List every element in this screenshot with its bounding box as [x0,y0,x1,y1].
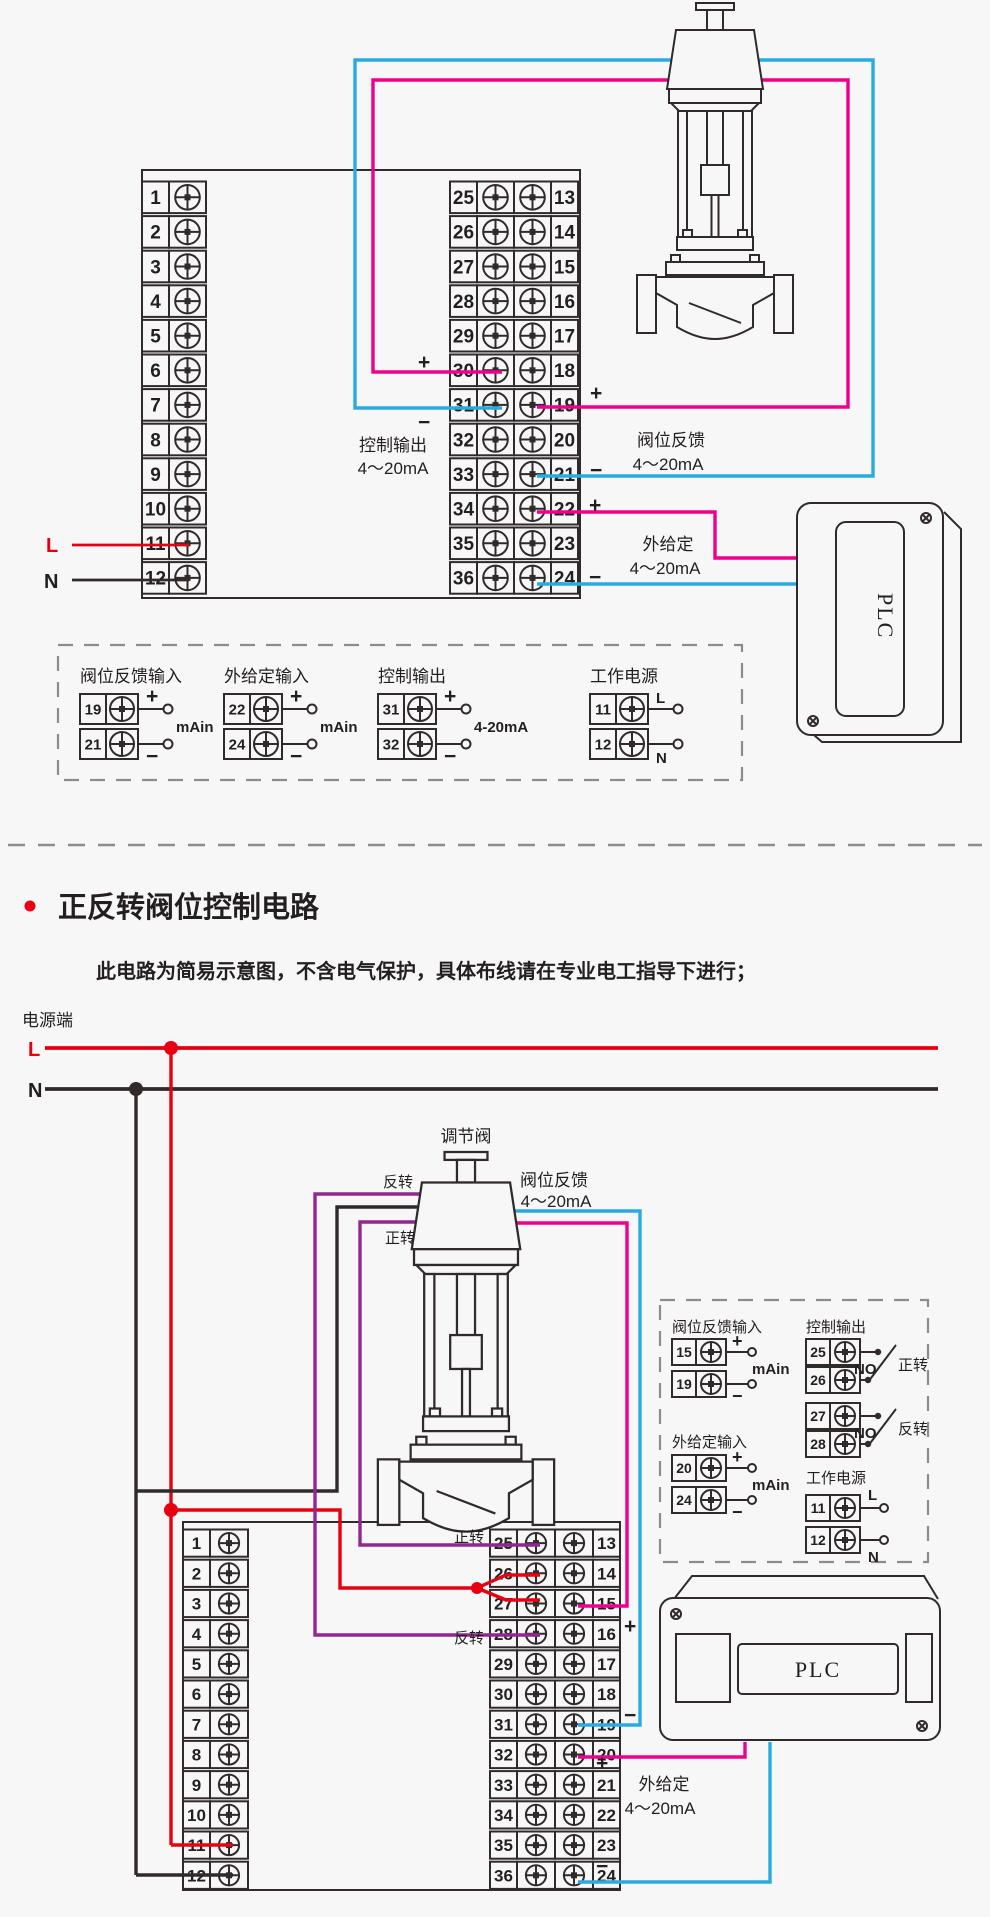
svg-text:9: 9 [192,1776,201,1795]
terminal-block2-1-12: 123456789101112 [183,1530,248,1889]
terminal-row-9: 9 [142,458,206,490]
svg-text:35: 35 [494,1836,513,1855]
svg-text:控制输出: 控制输出 [806,1319,866,1336]
terminal-row-36: 3624 [450,562,578,594]
svg-text:mAin: mAin [176,719,214,736]
svg-text:3: 3 [192,1595,201,1614]
svg-text:20: 20 [554,430,575,451]
terminal-row-10: 10 [183,1801,248,1828]
svg-text:−: − [444,745,456,768]
svg-text:17: 17 [554,327,575,348]
terminal-row-27: 2715 [450,251,578,283]
svg-text:L: L [656,690,665,707]
svg-text:10: 10 [145,500,166,521]
svg-text:13: 13 [597,1534,616,1553]
sign-minus-31: − [418,411,430,434]
terminal-row-25: 2513 [450,182,578,214]
svg-text:工作电源: 工作电源 [806,1470,866,1487]
svg-text:15: 15 [676,1344,692,1360]
svg-text:4-20mA: 4-20mA [474,719,528,736]
terminal-row-2: 2 [142,216,206,248]
terminal-row-4: 4 [142,285,206,317]
legend2-left-0: 阀位反馈输入15+19−mAin [672,1319,790,1406]
svg-text:22: 22 [229,701,246,718]
label-valve-feedback-range-1: 4～20mA [633,455,705,474]
svg-text:3: 3 [150,257,161,278]
svg-text:14: 14 [597,1564,616,1583]
diagram-control-output: 123456789101112 251326142715281629173018… [44,3,961,780]
label-forward-terminal: 正转 [454,1529,484,1546]
svg-text:24: 24 [554,569,576,590]
svg-text:15: 15 [597,1595,616,1614]
svg-text:4: 4 [192,1625,202,1644]
terminal-row-1: 1 [183,1530,248,1557]
svg-text:2: 2 [192,1564,201,1583]
label-control-output-range: 4～20mA [358,459,430,478]
svg-text:19: 19 [85,701,102,718]
terminal-row-25: 2513 [490,1530,620,1557]
wire-control-output-minus [355,60,873,476]
svg-text:17: 17 [597,1655,616,1674]
wiring-diagram-canvas: 123456789101112 251326142715281629173018… [0,0,990,1917]
label-valve-feedback-2: 阀位反馈 [520,1171,588,1190]
svg-text:16: 16 [597,1625,616,1644]
label-forward: 正转 [385,1230,415,1247]
legend1-group-0: 阀位反馈输入19+21−mAin [80,667,214,768]
terminal-row-7: 7 [183,1711,248,1738]
terminal-row-26: 2614 [450,216,578,248]
svg-text:N: N [868,1549,879,1566]
junction-dot-l2 [164,1503,178,1517]
label-valve-feedback-1: 阀位反馈 [637,431,705,450]
label-setpoint-1: 外给定 [643,535,694,554]
svg-text:36: 36 [494,1866,513,1885]
svg-text:23: 23 [554,534,575,555]
svg-text:工作电源: 工作电源 [590,667,658,686]
svg-text:32: 32 [453,430,474,451]
terminal-row-5: 5 [142,320,206,352]
label-l-1: L [46,535,58,557]
section-title: 正反转阀位控制电路 [58,890,320,924]
svg-text:33: 33 [494,1776,513,1795]
terminal-row-27: 2715 [490,1590,620,1617]
svg-text:15: 15 [554,257,576,278]
terminal-block-1-12: 123456789101112 [142,182,206,594]
svg-text:24: 24 [676,1492,692,1508]
legend2-left-1: 外给定输入20+24−mAin [672,1434,790,1522]
label-power-terminal: 电源端 [22,1011,73,1030]
terminal-row-9: 9 [183,1771,248,1798]
svg-text:32: 32 [494,1746,513,1765]
plc-box-1: PLC [797,503,961,742]
terminal-row-33: 3321 [450,458,578,490]
terminal-row-26: 2614 [490,1560,620,1587]
terminal-block-25-36-13-24: 2513261427152816291730183119322033213422… [450,182,578,594]
terminal-row-34: 3422 [490,1801,620,1828]
svg-text:8: 8 [150,430,161,451]
terminal-row-12: 12 [142,562,206,594]
sign-minus-21: − [590,459,602,482]
svg-text:29: 29 [453,327,474,348]
svg-text:13: 13 [554,188,575,209]
legend-groups-1: 阀位反馈输入19+21−mAin外给定输入22+24−mAin控制输出31+32… [80,667,683,768]
svg-text:22: 22 [554,500,575,521]
terminal-block2-25-36-13-24: 2513261427152816291730183119322033213422… [490,1530,620,1889]
label-n-2: N [28,1080,42,1102]
svg-text:10: 10 [187,1806,206,1825]
terminal-row-30: 3018 [490,1681,620,1708]
svg-text:+: + [732,1331,743,1351]
svg-text:12: 12 [595,736,612,753]
terminal-row-8: 8 [142,424,206,456]
label-setpoint-range-1: 4～20mA [630,559,702,578]
svg-text:5: 5 [192,1655,201,1674]
label-setpoint-range-2: 4～20mA [625,1799,697,1818]
svg-text:−: − [732,1386,743,1406]
svg-text:阀位反馈输入: 阀位反馈输入 [80,667,182,686]
terminal-row-3: 3 [142,251,206,283]
sign-plus-19: + [590,382,602,405]
terminal-row-3: 3 [183,1590,248,1617]
plc-label-1: PLC [873,593,898,639]
terminal-row-10: 10 [142,493,206,525]
label-valve: 调节阀 [441,1127,492,1146]
junction-dot-2627 [471,1582,483,1594]
terminal-row-6: 6 [183,1681,248,1708]
svg-text:4: 4 [150,292,161,313]
svg-text:−: − [146,745,158,768]
plc-label-2: PLC [795,1657,841,1682]
plc-3d-edge-2 [674,1576,938,1599]
svg-text:21: 21 [597,1776,616,1795]
svg-text:25: 25 [453,188,475,209]
diagram-forward-reverse: 电源端 L N 123456789101112 2513261427152816… [22,1011,940,1890]
terminal-row-2: 2 [183,1560,248,1587]
label-n-1: N [44,571,58,593]
svg-text:1: 1 [192,1534,201,1553]
svg-text:5: 5 [150,327,161,348]
svg-text:mAin: mAin [320,719,358,736]
junction-dot-n [129,1082,143,1096]
svg-text:30: 30 [494,1685,513,1704]
terminal-row-33: 3321 [490,1771,620,1798]
svg-text:6: 6 [150,361,161,382]
sign-plus-fb2: + [624,1615,636,1638]
svg-text:26: 26 [453,223,474,244]
svg-text:+: + [146,685,158,708]
svg-text:正转: 正转 [898,1357,928,1374]
svg-text:28: 28 [810,1436,826,1452]
svg-text:29: 29 [494,1655,513,1674]
svg-text:27: 27 [810,1408,826,1424]
terminal-row-11: 11 [142,528,206,560]
svg-text:+: + [290,685,302,708]
svg-text:mAin: mAin [752,1477,790,1494]
terminal-row-29: 2917 [490,1650,620,1677]
terminal-row-35: 3523 [450,528,578,560]
terminal-row-4: 4 [183,1620,248,1647]
sign-plus-22: + [589,494,601,517]
svg-text:16: 16 [554,292,575,313]
svg-text:N: N [656,750,667,767]
label-reverse: 反转 [383,1174,413,1191]
valve-wiring-page: 123456789101112 251326142715281629173018… [0,0,990,1917]
svg-text:18: 18 [597,1685,616,1704]
sign-minus-sp2: − [596,1855,608,1878]
svg-text:18: 18 [554,361,575,382]
plc-box-2: PLC [660,1576,940,1740]
label-valve-feedback-range-2: 4～20mA [521,1192,593,1211]
svg-text:7: 7 [192,1715,201,1734]
sign-minus-24: − [589,566,601,589]
svg-text:31: 31 [383,701,400,718]
legend1-group-3: 工作电源11L12N [590,667,683,767]
sign-minus-fb2: − [624,1704,636,1727]
svg-text:33: 33 [453,465,474,486]
svg-text:7: 7 [150,396,161,417]
control-valve-1 [637,3,793,339]
label-reverse-terminal: 反转 [454,1630,484,1647]
sign-plus-sp2: + [596,1752,608,1775]
svg-text:NO: NO [854,1425,877,1442]
svg-text:11: 11 [811,1500,826,1516]
svg-text:19: 19 [676,1376,692,1392]
terminal-row-6: 6 [142,355,206,387]
section-bullet-icon [25,901,36,912]
svg-text:23: 23 [597,1836,616,1855]
legend2-power: 工作电源11L12N [806,1470,888,1566]
svg-text:8: 8 [192,1746,201,1765]
svg-text:32: 32 [383,736,400,753]
svg-text:−: − [732,1502,743,1522]
svg-text:11: 11 [595,701,611,718]
svg-text:31: 31 [453,396,475,417]
junction-dot-l [164,1041,178,1055]
svg-text:2: 2 [150,223,161,244]
svg-text:12: 12 [810,1532,826,1548]
svg-text:35: 35 [453,534,475,555]
terminal-row-8: 8 [183,1741,248,1768]
terminal-row-29: 2917 [450,320,578,352]
svg-text:L: L [868,1487,877,1504]
terminal-row-1: 1 [142,182,206,214]
svg-text:1: 1 [150,188,161,209]
svg-text:36: 36 [453,569,474,590]
svg-text:+: + [732,1447,743,1467]
svg-text:阀位反馈输入: 阀位反馈输入 [672,1319,762,1336]
svg-text:24: 24 [229,736,246,753]
svg-text:−: − [290,745,302,768]
svg-text:22: 22 [597,1806,616,1825]
terminal-row-32: 3220 [450,424,578,456]
svg-text:反转: 反转 [898,1421,928,1438]
svg-text:34: 34 [453,500,475,521]
svg-text:9: 9 [150,465,161,486]
terminal-row-28: 2816 [450,285,578,317]
svg-text:27: 27 [453,257,474,278]
svg-text:外给定输入: 外给定输入 [224,667,309,686]
terminal-row-7: 7 [142,389,206,421]
svg-text:21: 21 [85,736,102,753]
label-control-output: 控制输出 [359,436,427,455]
svg-text:26: 26 [810,1372,826,1388]
terminal-row-34: 3422 [450,493,578,525]
svg-text:14: 14 [554,223,576,244]
svg-text:+: + [444,685,456,708]
terminal-row-31: 3119 [450,389,578,421]
svg-text:6: 6 [192,1685,201,1704]
svg-text:控制输出: 控制输出 [378,667,446,686]
legend1-group-1: 外给定输入22+24−mAin [224,667,358,768]
svg-text:NO: NO [854,1361,877,1378]
legend-groups-2: 阀位反馈输入15+19−mAin外给定输入20+24−mAin控制输出2526N… [672,1319,928,1566]
svg-text:28: 28 [453,292,474,313]
svg-text:31: 31 [494,1715,513,1734]
svg-text:25: 25 [810,1344,826,1360]
legend1-group-2: 控制输出31+32−4-20mA [378,667,528,768]
svg-text:20: 20 [676,1460,692,1476]
svg-text:34: 34 [494,1806,513,1825]
sign-plus-30: + [418,351,430,374]
legend2-control-output: 控制输出2526NO正转2728NO反转 [806,1319,928,1457]
label-l-2: L [28,1039,40,1061]
terminal-row-5: 5 [183,1650,248,1677]
wire-control-output-plus [373,80,848,407]
label-setpoint-2: 外给定 [639,1775,690,1794]
svg-text:mAin: mAin [752,1361,790,1378]
section-note: 此电路为简易示意图，不含电气保护，具体布线请在专业电工指导下进行； [96,959,756,983]
plc-body-1 [797,503,943,735]
